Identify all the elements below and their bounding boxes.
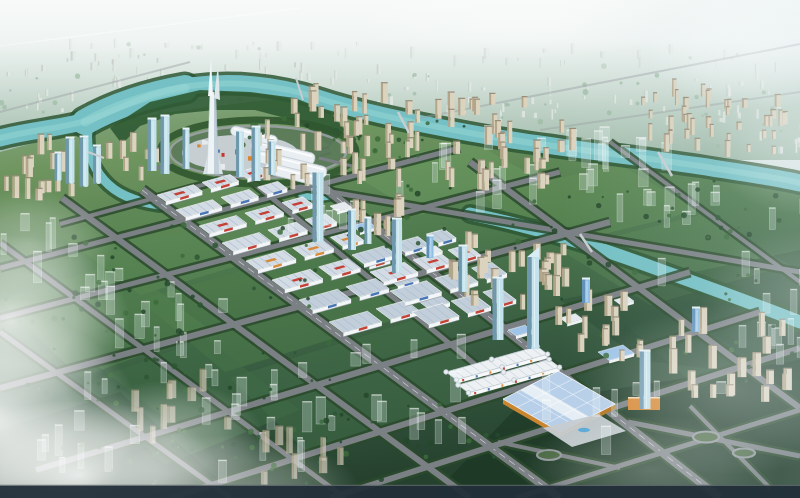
residential-slab <box>536 149 539 171</box>
tree-cluster <box>515 239 521 245</box>
tree-cluster <box>306 297 310 301</box>
ghost-building <box>499 166 505 188</box>
residential-slab <box>461 99 466 116</box>
tree-cluster <box>154 300 159 305</box>
tree-cluster <box>483 433 488 438</box>
tree-cluster <box>428 441 433 446</box>
tree-cluster <box>343 451 349 457</box>
tree-cluster <box>339 441 342 444</box>
residential-slab <box>480 258 485 279</box>
residential-slab <box>387 216 390 236</box>
dome-pavilion <box>444 370 449 375</box>
tree-cluster <box>415 191 421 197</box>
residential-slab <box>484 256 488 273</box>
tree-cluster <box>307 304 311 308</box>
tree-cluster <box>358 227 364 233</box>
dome-pavilion <box>489 357 494 362</box>
tree-cluster <box>511 223 514 226</box>
tree-cluster <box>406 184 410 188</box>
tree-cluster <box>458 241 462 245</box>
tree-cluster <box>141 309 146 314</box>
tree-cluster <box>550 226 553 229</box>
ghost-building <box>459 417 466 444</box>
ghost-building <box>435 419 442 443</box>
residential-slab <box>556 276 560 296</box>
residential-slab <box>437 100 441 119</box>
residential-slab <box>473 234 478 248</box>
tree-cluster <box>466 438 471 443</box>
tree-cluster <box>305 244 308 247</box>
bottom-edge-road <box>0 486 800 498</box>
tree-cluster <box>492 456 495 459</box>
tree-cluster <box>417 444 420 447</box>
residential-slab <box>140 167 143 181</box>
tree-cluster <box>177 341 179 343</box>
tree-cluster <box>384 243 389 248</box>
tree-cluster <box>421 139 424 142</box>
residential-slab <box>409 138 413 148</box>
ghost-building <box>457 334 466 358</box>
residential-slab <box>49 135 52 150</box>
residential-slab <box>407 141 410 157</box>
tree-cluster <box>364 393 369 398</box>
tree-cluster <box>416 154 419 157</box>
glass-tower <box>392 218 402 274</box>
glass-tower <box>493 277 504 341</box>
tree-cluster <box>144 358 149 363</box>
residential-slab <box>416 132 419 151</box>
glass-tower <box>236 130 244 178</box>
tree-cluster <box>165 281 171 287</box>
glass-tower <box>313 171 324 243</box>
residential-slab <box>450 110 454 127</box>
ghost-building <box>206 364 212 377</box>
residential-slab <box>476 100 480 115</box>
tree-cluster <box>437 402 441 406</box>
tree-cluster <box>462 412 465 415</box>
tree-cluster <box>379 477 384 482</box>
tree-cluster <box>282 116 287 121</box>
residential-slab <box>526 158 530 174</box>
ghost-building <box>543 374 550 394</box>
tree-cluster <box>262 352 265 355</box>
ghost-building <box>451 371 461 402</box>
residential-slab <box>6 176 9 191</box>
residential-slab <box>306 174 309 186</box>
residential-slab <box>467 232 471 252</box>
dome-pavilion <box>466 390 471 395</box>
tree-cluster <box>172 363 178 369</box>
tree-cluster <box>404 438 410 444</box>
tree-cluster <box>319 419 323 423</box>
ghost-building <box>161 362 167 383</box>
residential-slab <box>408 101 413 114</box>
ghost-building <box>329 415 335 430</box>
tree-cluster <box>396 138 401 143</box>
tree-cluster <box>299 279 302 282</box>
tree-cluster <box>228 386 233 391</box>
residential-slab <box>122 141 126 159</box>
residential-slab <box>491 162 494 178</box>
aerial-render-canvas <box>0 0 800 498</box>
residential-slab <box>362 159 365 181</box>
ghost-building <box>180 332 186 357</box>
tree-cluster <box>463 125 466 128</box>
residential-slab <box>125 158 129 171</box>
residential-slab <box>312 91 316 111</box>
residential-slab <box>390 159 395 170</box>
tree-cluster <box>156 358 160 362</box>
ghost-building <box>154 327 159 352</box>
glass-tower <box>365 217 372 245</box>
tree-cluster <box>409 187 413 191</box>
tree-cluster <box>552 228 558 234</box>
residential-slab <box>376 214 381 235</box>
residential-slab <box>343 159 347 176</box>
residential-slab <box>320 107 324 118</box>
tree-cluster <box>416 241 420 245</box>
tree-cluster <box>407 405 410 408</box>
dome-pavilion <box>501 370 506 375</box>
crystal-tower <box>527 247 539 349</box>
residential-slab <box>292 175 295 189</box>
tree-cluster <box>197 302 202 307</box>
residential-slab <box>132 133 136 152</box>
residential-slab <box>524 97 528 107</box>
tree-cluster <box>398 156 401 159</box>
tree-cluster <box>424 454 429 459</box>
tree-cluster <box>375 136 380 141</box>
residential-slab <box>450 92 455 110</box>
residential-slab <box>491 94 495 105</box>
tree-cluster <box>442 227 446 231</box>
residential-slab <box>456 142 460 154</box>
ghost-building <box>115 268 123 281</box>
residential-slab <box>28 158 33 177</box>
residential-slab <box>364 94 367 113</box>
residential-slab <box>354 92 357 111</box>
ghost-building <box>542 400 550 420</box>
residential-slab <box>359 171 362 184</box>
tree-cluster <box>127 288 131 292</box>
tree-cluster <box>449 187 452 190</box>
glass-tower <box>66 137 75 185</box>
tree-cluster <box>248 135 252 139</box>
tree-cluster <box>329 378 332 381</box>
ghost-building <box>326 210 332 226</box>
residential-slab <box>383 83 387 103</box>
tree-cluster <box>144 375 149 380</box>
tree-cluster <box>170 224 174 228</box>
residential-slab <box>391 134 394 143</box>
plaza-pavilion <box>222 153 225 157</box>
residential-slab <box>409 122 413 137</box>
tree-cluster <box>404 214 410 220</box>
tree-cluster <box>340 413 344 417</box>
residential-slab <box>388 143 391 159</box>
tree-cluster <box>310 379 313 382</box>
residential-slab <box>487 127 492 145</box>
tree-cluster <box>179 330 184 335</box>
residential-slab <box>342 142 345 154</box>
ghost-building <box>214 340 220 353</box>
glass-tower <box>348 209 356 251</box>
tree-cluster <box>448 424 453 429</box>
residential-slab <box>47 181 52 193</box>
dome-pavilion <box>545 352 550 357</box>
ghost-building <box>267 417 275 429</box>
glass-box-building <box>427 235 434 259</box>
residential-slab <box>40 135 44 155</box>
residential-slab <box>62 152 66 172</box>
residential-slab <box>541 159 545 168</box>
residential-slab <box>484 169 489 190</box>
glass-tower <box>459 245 468 293</box>
residential-slab <box>521 251 525 267</box>
residential-slab <box>474 295 479 305</box>
residential-slab <box>293 99 297 114</box>
ghost-building <box>410 408 419 439</box>
tree-cluster <box>252 287 256 291</box>
tree-cluster <box>305 123 309 127</box>
tree-cluster <box>326 340 331 345</box>
glass-tower <box>252 126 261 182</box>
ghost-building <box>288 218 293 232</box>
tree-cluster <box>294 352 297 355</box>
tree-cluster <box>373 341 379 347</box>
tree-cluster <box>370 420 373 423</box>
residential-slab <box>278 150 282 166</box>
ghost-building <box>372 395 382 421</box>
glass-tower <box>55 152 62 182</box>
tree-cluster <box>347 418 350 421</box>
residential-slab <box>317 132 322 151</box>
residential-slab <box>453 262 458 280</box>
glass-tower <box>269 140 276 176</box>
residential-slab <box>504 147 508 167</box>
ghost-building <box>351 352 361 366</box>
ghost-building <box>332 209 339 222</box>
ghost-building <box>303 401 312 432</box>
residential-slab <box>511 251 515 272</box>
glass-tower <box>161 115 170 175</box>
tree-cluster <box>373 149 376 152</box>
ghost-building <box>212 370 218 386</box>
tree-cluster <box>334 128 338 132</box>
tree-cluster <box>195 255 200 260</box>
residential-slab <box>396 199 401 217</box>
tree-cluster <box>332 138 335 141</box>
ghost-building <box>339 211 346 228</box>
residential-slab <box>509 122 512 144</box>
glass-tower <box>93 145 101 185</box>
plaza-pavilion <box>197 144 200 147</box>
residential-slab <box>302 134 305 151</box>
residential-slab <box>356 121 359 136</box>
tree-cluster <box>269 296 272 299</box>
tree-cluster <box>532 199 536 203</box>
residential-slab <box>336 105 340 121</box>
residential-slab <box>365 116 368 125</box>
plaza-pavilion <box>203 141 207 144</box>
residential-slab <box>540 173 545 188</box>
ghost-building <box>432 162 437 182</box>
tree-cluster <box>181 222 187 228</box>
ghost-building <box>135 314 145 339</box>
glass-tower <box>80 136 89 188</box>
tree-cluster <box>333 412 338 417</box>
tree-cluster <box>495 433 500 438</box>
residential-slab <box>296 114 299 128</box>
tree-cluster <box>303 278 307 282</box>
residential-slab <box>71 184 75 197</box>
tree-cluster <box>191 294 195 298</box>
tree-cluster <box>435 120 438 123</box>
dome-pavilion <box>547 357 552 362</box>
residential-slab <box>417 110 420 122</box>
tree-cluster <box>269 387 273 391</box>
tree-cluster <box>426 121 430 125</box>
residential-slab <box>398 169 401 187</box>
tree-cluster <box>212 242 218 248</box>
tree-cluster <box>184 371 187 374</box>
tree-cluster <box>154 334 157 337</box>
tree-cluster <box>313 268 317 272</box>
glass-tower <box>183 128 190 170</box>
ghost-building <box>363 344 371 363</box>
residential-slab <box>547 275 552 290</box>
residential-slab <box>350 138 354 154</box>
tree-cluster <box>112 268 116 272</box>
glass-tower <box>148 118 157 172</box>
ghost-building <box>219 298 228 312</box>
tree-cluster <box>323 418 329 424</box>
ghost-building <box>411 340 417 358</box>
ghost-building <box>476 191 484 212</box>
tree-cluster <box>180 254 184 258</box>
residential-slab <box>522 295 525 310</box>
tree-cluster <box>514 246 517 249</box>
residential-slab <box>267 120 270 139</box>
right-haze <box>560 0 800 498</box>
aerial-render-stage <box>0 0 800 498</box>
residential-slab <box>366 136 370 156</box>
tree-cluster <box>262 396 265 399</box>
residential-slab <box>451 168 455 187</box>
tree-cluster <box>277 229 283 235</box>
residential-slab <box>545 175 549 184</box>
ghost-building <box>298 362 306 377</box>
residential-slab <box>108 143 112 159</box>
tree-cluster <box>156 275 159 278</box>
